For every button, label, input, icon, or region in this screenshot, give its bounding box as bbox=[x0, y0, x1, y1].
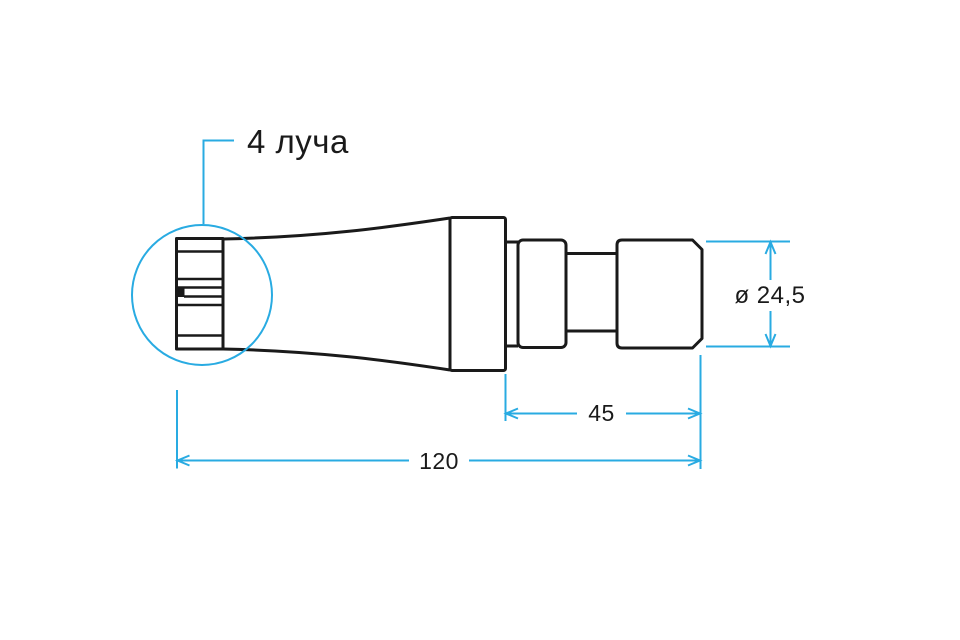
tip-detail-circle bbox=[132, 225, 272, 365]
tip-slot-notch bbox=[175, 288, 185, 298]
length-45-dimension: 45 bbox=[506, 355, 701, 469]
tip-groove-lines bbox=[175, 252, 223, 336]
length-120-dim-label: 120 bbox=[419, 448, 459, 474]
taper-bottom-contour bbox=[223, 349, 450, 370]
diameter-dimension: ø 24,5 bbox=[706, 242, 806, 347]
shank-outline bbox=[617, 240, 702, 348]
taper-top-contour bbox=[223, 218, 450, 239]
diameter-dim-label: ø 24,5 bbox=[734, 282, 805, 309]
shaft bbox=[566, 254, 617, 332]
flange-outline bbox=[450, 218, 506, 371]
length-120-dimension: 120 bbox=[177, 390, 701, 474]
technical-drawing-canvas: 4 луча ø 24,5 45 bbox=[0, 0, 960, 640]
callout-leader-line bbox=[204, 141, 235, 225]
collar-outline bbox=[518, 240, 566, 348]
neck-groove bbox=[506, 242, 519, 346]
part-drawing-svg: 4 луча ø 24,5 45 bbox=[0, 0, 960, 640]
part-outline bbox=[175, 218, 702, 371]
callout-label: 4 луча bbox=[247, 123, 349, 160]
tip-callout: 4 луча bbox=[132, 123, 349, 365]
length-45-dim-label: 45 bbox=[588, 400, 615, 426]
tapered-body bbox=[223, 218, 450, 370]
